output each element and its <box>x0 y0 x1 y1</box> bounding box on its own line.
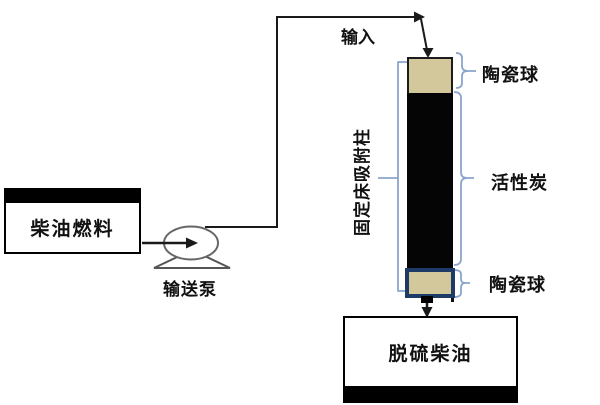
desulfurized-diesel-label: 脱硫柴油 <box>388 339 472 366</box>
pipe-line <box>205 17 417 227</box>
diesel-fuel-tank: 柴油燃料 <box>4 188 141 254</box>
activated-carbon-label: 活性炭 <box>491 169 548 195</box>
column-outlet-nozzle <box>421 296 433 303</box>
diesel-fuel-label: 柴油燃料 <box>30 214 114 241</box>
process-diagram: 柴油燃料 脱硫柴油 输入 输送泵 固定床吸附柱 陶瓷球 活性炭 陶瓷球 <box>0 0 600 405</box>
pipe-arrowhead-right <box>414 12 425 23</box>
carbon-brace <box>454 92 474 265</box>
ceramic-bottom-brace <box>454 270 470 297</box>
column-ceramic-bottom-section <box>405 268 455 298</box>
desulfurized-diesel-tank: 脱硫柴油 <box>343 316 518 403</box>
desulf-tank-liquid <box>345 386 516 401</box>
column-ceramic-top-section <box>407 57 453 93</box>
input-label: 输入 <box>332 23 384 48</box>
column-activated-carbon-section <box>407 93 453 268</box>
column-label: 固定床吸附柱 <box>348 117 372 247</box>
ceramic-bottom-label: 陶瓷球 <box>489 271 546 297</box>
pump-label: 输送泵 <box>153 275 227 300</box>
pipe-drop-line <box>421 19 427 50</box>
ceramic-top-label: 陶瓷球 <box>482 61 539 87</box>
ceramic-top-brace <box>456 53 476 88</box>
diesel-tank-cap <box>6 190 139 203</box>
